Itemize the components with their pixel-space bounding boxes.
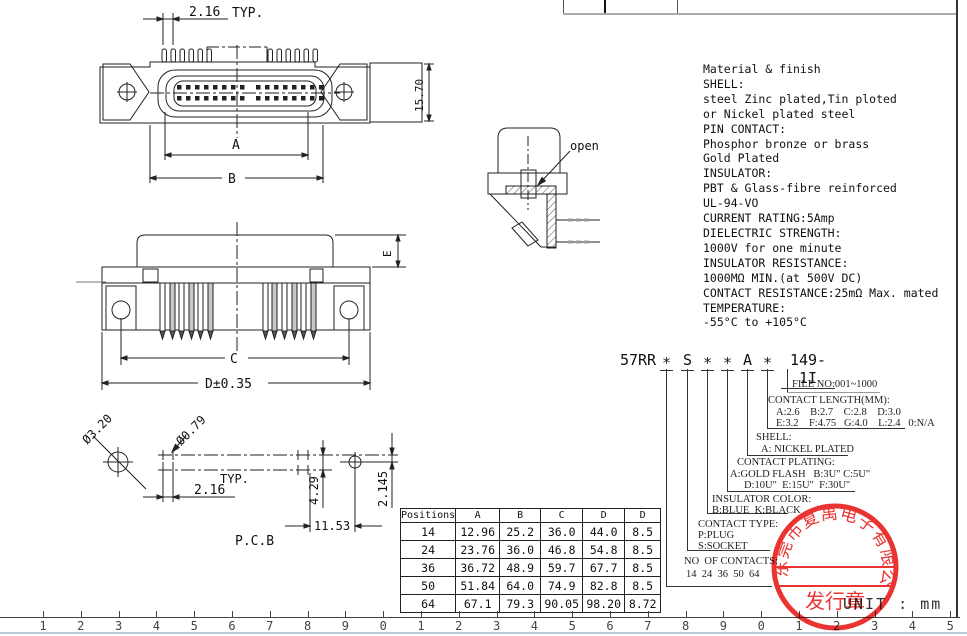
pn-plating-placeholder: ∗ bbox=[721, 351, 734, 371]
table-cell: 8.5 bbox=[625, 523, 661, 541]
pn-leader-4 bbox=[727, 369, 728, 492]
table-cell: 67.7 bbox=[583, 559, 625, 577]
dim-d: D±0.35 bbox=[205, 377, 252, 392]
titleblock-divider-3 bbox=[677, 0, 678, 13]
material-line: -55°C to +105°C bbox=[703, 315, 938, 330]
callout-plating-title: CONTACT PLATING: bbox=[737, 457, 835, 469]
callout-contacts-row1: 14 24 36 50 64 bbox=[686, 569, 760, 581]
pn-length-placeholder: ∗ bbox=[761, 351, 774, 371]
ruler-tick bbox=[648, 611, 649, 617]
dim-height-front: 15.70 bbox=[413, 79, 426, 112]
table-cell: 12.96 bbox=[456, 523, 500, 541]
material-line: Material & finish bbox=[703, 62, 938, 77]
ruler-tick bbox=[497, 611, 498, 617]
ruler-number: 6 bbox=[606, 619, 613, 633]
material-line: steel Zinc plated,Tin ploted bbox=[703, 92, 938, 107]
table-cell: 64.0 bbox=[500, 577, 541, 595]
callout-rule-contacts bbox=[666, 586, 772, 587]
material-line: CONTACT RESISTANCE:25mΩ Max. mated bbox=[703, 286, 938, 301]
pn-series: 57RR bbox=[617, 351, 659, 369]
table-header-cell: A bbox=[456, 509, 500, 523]
ruler-tick bbox=[156, 611, 157, 617]
table-cell: 51.84 bbox=[456, 577, 500, 595]
pcb-title: P.C.B bbox=[235, 534, 274, 549]
table-header-row: PositionsABCDD bbox=[401, 509, 661, 523]
ruler-number: 8 bbox=[304, 619, 311, 633]
material-line: TEMPERATURE: bbox=[703, 301, 938, 316]
pn-leader-5 bbox=[747, 369, 748, 456]
table-cell: 64 bbox=[401, 595, 456, 613]
table-cell: 74.9 bbox=[541, 577, 583, 595]
table-cell: 82.8 bbox=[583, 577, 625, 595]
ruler-tick bbox=[459, 611, 460, 617]
material-line: CURRENT RATING:5Amp bbox=[703, 211, 938, 226]
material-finish-block: Material & finishSHELL:steel Zinc plated… bbox=[703, 62, 938, 330]
table-cell: 36.72 bbox=[456, 559, 500, 577]
callout-contact-length-title: CONTACT LENGTH(MM): bbox=[768, 395, 890, 407]
table-cell: 50 bbox=[401, 577, 456, 595]
ruler-tick bbox=[308, 611, 309, 617]
screw-hole-left bbox=[112, 301, 130, 319]
table-cell: 8.72 bbox=[625, 595, 661, 613]
titleblock-divider-1 bbox=[563, 0, 564, 13]
ruler-tick bbox=[119, 611, 120, 617]
material-line: Gold Plated bbox=[703, 151, 938, 166]
top-pins bbox=[162, 49, 318, 62]
table-cell: 79.3 bbox=[500, 595, 541, 613]
table-row: 1412.9625.236.044.08.5 bbox=[401, 523, 661, 541]
pn-leader-2 bbox=[687, 369, 688, 551]
table-cell: 14 bbox=[401, 523, 456, 541]
material-line: or Nickel plated steel bbox=[703, 107, 938, 122]
table-cell: 44.0 bbox=[583, 523, 625, 541]
callout-type-row1: P:PLUG bbox=[698, 530, 734, 542]
material-line: INSULATOR RESISTANCE: bbox=[703, 256, 938, 271]
table-cell: 8.5 bbox=[625, 541, 661, 559]
ruler-number: 5 bbox=[569, 619, 576, 633]
callout-file-no: FILE NO:001~1000 bbox=[792, 379, 877, 391]
pn-leader-3 bbox=[707, 369, 708, 514]
dim-b: B bbox=[228, 172, 236, 187]
ruler-tick bbox=[610, 611, 611, 617]
ruler-number: 7 bbox=[266, 619, 273, 633]
ruler-tick bbox=[723, 611, 724, 617]
ruler-number: 2 bbox=[455, 619, 462, 633]
callout-shell-title: SHELL: bbox=[756, 432, 792, 444]
material-line: PBT & Glass-fibre reinforced bbox=[703, 181, 938, 196]
material-line: INSULATOR: bbox=[703, 166, 938, 181]
ruler-tick bbox=[383, 611, 384, 617]
stamp-company-text: 东莞市复禹电子有限公司 bbox=[763, 495, 899, 589]
ruler-number: 2 bbox=[77, 619, 84, 633]
table-row: 2423.7636.046.854.88.5 bbox=[401, 541, 661, 559]
table-cell: 25.2 bbox=[500, 523, 541, 541]
side-pins bbox=[160, 283, 316, 339]
dim-e: E bbox=[381, 250, 394, 257]
screw-hole-right bbox=[340, 301, 358, 319]
ruler-number: 8 bbox=[682, 619, 689, 633]
table-cell: 46.8 bbox=[541, 541, 583, 559]
ruler-number: 9 bbox=[720, 619, 727, 633]
table-row: 5051.8464.074.982.88.5 bbox=[401, 577, 661, 595]
dim-typ-front: TYP. bbox=[232, 6, 263, 21]
callout-rule-file bbox=[787, 392, 880, 393]
ruler-tick bbox=[345, 611, 346, 617]
ruler-number: 9 bbox=[342, 619, 349, 633]
table-cell: 8.5 bbox=[625, 559, 661, 577]
material-line: 1000MΩ MIN.(at 500V DC) bbox=[703, 271, 938, 286]
issue-stamp: 东莞市复禹电子有限公司 发行章 bbox=[763, 495, 909, 636]
ruler-tick bbox=[232, 611, 233, 617]
dim-c: C bbox=[230, 352, 238, 367]
ruler-tick bbox=[421, 611, 422, 617]
material-line: UL-94-VO bbox=[703, 196, 938, 211]
callout-plating-row2: D:10U" E:15U" F:30U" bbox=[744, 480, 850, 492]
ruler-number: 4 bbox=[531, 619, 538, 633]
pn-shell-code: A bbox=[741, 351, 754, 371]
material-line: Phosphor bronze or brass bbox=[703, 137, 938, 152]
ruler-number: 4 bbox=[909, 619, 916, 633]
table-cell: 67.1 bbox=[456, 595, 500, 613]
table-cell: 98.20 bbox=[583, 595, 625, 613]
ruler-tick bbox=[534, 611, 535, 617]
pcb-row-gap-label: 4.29 bbox=[307, 476, 321, 505]
titleblock-divider-2 bbox=[604, 0, 606, 13]
table-cell: 36.0 bbox=[500, 541, 541, 559]
pn-leader-7 bbox=[787, 369, 788, 393]
pn-contact-type: S bbox=[681, 351, 694, 371]
ruler-number: 5 bbox=[191, 619, 198, 633]
ruler-number: 1 bbox=[417, 619, 424, 633]
table-header-cell: B bbox=[500, 509, 541, 523]
titleblock-bottom-edge bbox=[563, 13, 958, 15]
table-row: 6467.179.390.0598.208.72 bbox=[401, 595, 661, 613]
table-cell: 36.0 bbox=[541, 523, 583, 541]
callout-shell-row1: A: NICKEL PLATED bbox=[761, 444, 854, 456]
pcb-half-gap-label: 2.145 bbox=[376, 471, 390, 507]
pcb-end-dist-label: 11.53 bbox=[314, 519, 350, 533]
ruler-tick bbox=[43, 611, 44, 617]
callout-contact-length-row2: E:3.2 F:4.75 G:4.0 L:2.4 0:N/A bbox=[776, 418, 935, 430]
pn-contacts-placeholder: ∗ bbox=[660, 351, 673, 371]
table-cell: 54.8 bbox=[583, 541, 625, 559]
table-cell: 36 bbox=[401, 559, 456, 577]
sheet-border-right bbox=[956, 0, 958, 618]
table-header-cell: C bbox=[541, 509, 583, 523]
dimensions-table: PositionsABCDD 1412.9625.236.044.08.5242… bbox=[400, 508, 661, 613]
dim-a: A bbox=[232, 138, 240, 153]
material-line: 1000V for one minute bbox=[703, 241, 938, 256]
ruler-tick bbox=[81, 611, 82, 617]
callout-plating-row1: A:GOLD FLASH B:3U" C:5U" bbox=[730, 469, 870, 481]
pn-insulator-placeholder: ∗ bbox=[701, 351, 714, 371]
table-header-cell: Positions bbox=[401, 509, 456, 523]
front-view bbox=[100, 13, 434, 183]
callout-type-row2: S:SOCKET bbox=[698, 541, 748, 553]
ruler-tick bbox=[950, 611, 951, 617]
table-row: 3636.7248.959.767.78.5 bbox=[401, 559, 661, 577]
ruler-tick bbox=[270, 611, 271, 617]
dim-pitch-front: 2.16 bbox=[189, 5, 220, 20]
table-header-cell: D bbox=[625, 509, 661, 523]
ruler-number: 5 bbox=[947, 619, 954, 633]
pcb-hole-large-label: Ø3.20 bbox=[79, 411, 114, 446]
ruler-number: 3 bbox=[115, 619, 122, 633]
ruler-number: 0 bbox=[380, 619, 387, 633]
material-line: PIN CONTACT: bbox=[703, 122, 938, 137]
drawing-sheet: { "unit": {"label": "UNIT : mm"}, "mater… bbox=[0, 0, 967, 636]
table-header-cell: D bbox=[583, 509, 625, 523]
ruler-number: 7 bbox=[644, 619, 651, 633]
ruler-tick bbox=[686, 611, 687, 617]
table-cell: 48.9 bbox=[500, 559, 541, 577]
table-cell: 24 bbox=[401, 541, 456, 559]
ruler-number: 4 bbox=[153, 619, 160, 633]
table-cell: 8.5 bbox=[625, 577, 661, 595]
ruler-tick bbox=[194, 611, 195, 617]
pcb-typ-label: TYP. bbox=[220, 472, 249, 486]
ruler-number: 1 bbox=[39, 619, 46, 633]
material-line: DIELECTRIC STRENGTH: bbox=[703, 226, 938, 241]
table-cell: 90.05 bbox=[541, 595, 583, 613]
pn-leader-1 bbox=[666, 369, 667, 587]
pcb-hole-small-label: Ø0.79 bbox=[173, 413, 208, 448]
ruler-number: 6 bbox=[228, 619, 235, 633]
table-cell: 59.7 bbox=[541, 559, 583, 577]
stamp-issue-text: 发行章 bbox=[805, 589, 865, 613]
section-open-label: open bbox=[570, 139, 599, 153]
table-cell: 23.76 bbox=[456, 541, 500, 559]
side-view bbox=[76, 222, 406, 390]
callout-contact-length-row1: A:2.6 B:2.7 C:2.8 D:3.0 bbox=[776, 407, 901, 419]
ruler-number: 3 bbox=[493, 619, 500, 633]
material-line: SHELL: bbox=[703, 77, 938, 92]
ruler-tick bbox=[572, 611, 573, 617]
